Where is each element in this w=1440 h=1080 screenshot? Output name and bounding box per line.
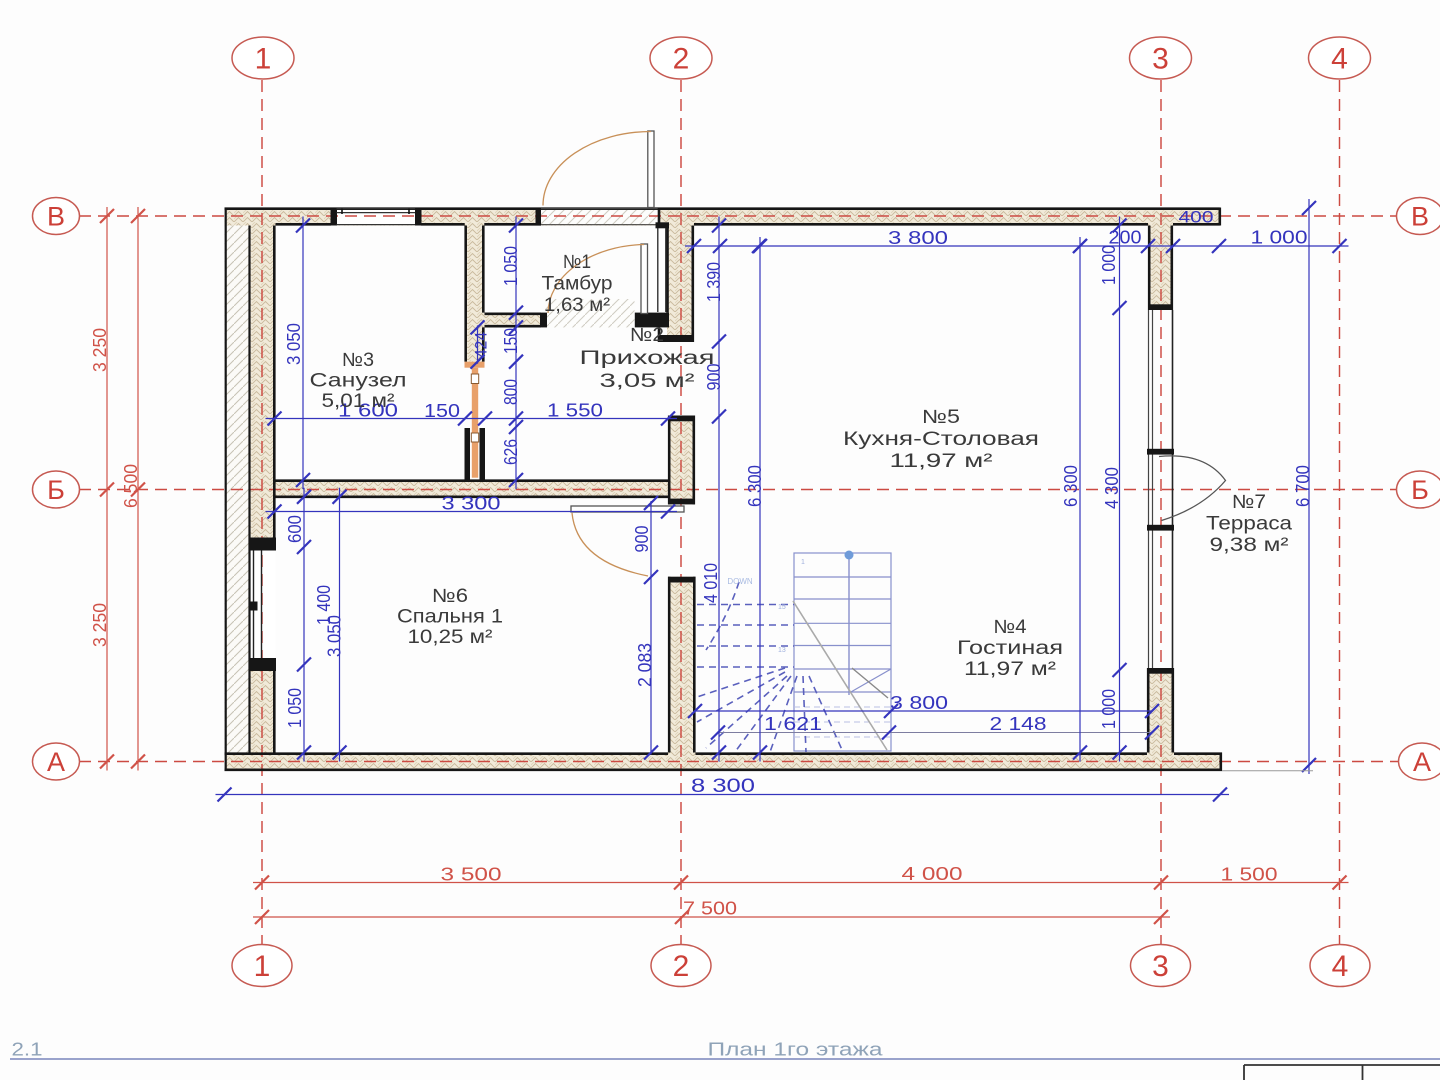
svg-text:1: 1 <box>254 950 271 983</box>
svg-text:4 000: 4 000 <box>902 863 963 884</box>
svg-text:6 300: 6 300 <box>744 465 765 507</box>
svg-text:3 300: 3 300 <box>442 493 501 514</box>
svg-text:3 800: 3 800 <box>888 227 948 248</box>
svg-text:1 390: 1 390 <box>703 262 724 302</box>
svg-text:900: 900 <box>631 526 652 553</box>
svg-text:3,05 м²: 3,05 м² <box>600 371 695 392</box>
svg-text:1 050: 1 050 <box>284 688 305 728</box>
svg-text:1 000: 1 000 <box>1098 689 1119 729</box>
svg-text:1 621: 1 621 <box>764 713 822 734</box>
svg-text:3 050: 3 050 <box>324 615 345 657</box>
svg-text:626: 626 <box>500 439 521 465</box>
svg-text:6 500: 6 500 <box>120 464 141 508</box>
svg-text:№2: №2 <box>630 325 664 346</box>
svg-text:10,25 м²: 10,25 м² <box>408 627 493 648</box>
svg-text:В: В <box>1411 202 1429 232</box>
svg-text:А: А <box>47 747 65 777</box>
svg-text:2.1: 2.1 <box>12 1040 43 1060</box>
svg-text:11,97 м²: 11,97 м² <box>890 451 993 472</box>
svg-text:4 300: 4 300 <box>1101 467 1122 509</box>
svg-text:150: 150 <box>500 328 521 354</box>
svg-text:№3: №3 <box>342 350 374 371</box>
svg-text:6 300: 6 300 <box>1060 465 1081 507</box>
svg-text:2: 2 <box>673 43 690 76</box>
svg-text:1 500: 1 500 <box>1221 864 1278 885</box>
svg-text:План 1го этажа: План 1го этажа <box>708 1040 884 1060</box>
svg-text:В: В <box>47 202 65 232</box>
svg-text:600: 600 <box>284 515 305 543</box>
svg-text:2: 2 <box>673 950 690 983</box>
svg-text:Гостиная: Гостиная <box>957 638 1063 659</box>
svg-text:1: 1 <box>255 43 272 76</box>
svg-text:800: 800 <box>500 379 521 405</box>
svg-text:400: 400 <box>1179 208 1214 227</box>
svg-text:15: 15 <box>778 604 786 611</box>
svg-text:1 050: 1 050 <box>500 246 521 286</box>
svg-text:4 010: 4 010 <box>700 563 721 603</box>
svg-text:1: 1 <box>801 559 805 566</box>
svg-text:1 000: 1 000 <box>1098 245 1119 285</box>
svg-text:3 250: 3 250 <box>89 328 110 372</box>
svg-text:Тамбур: Тамбур <box>542 274 613 295</box>
svg-text:3: 3 <box>1152 950 1169 983</box>
svg-text:DOWN: DOWN <box>727 577 753 586</box>
svg-text:№7: №7 <box>1232 492 1266 513</box>
svg-text:№5: №5 <box>922 407 960 428</box>
svg-text:Б: Б <box>1411 475 1429 505</box>
svg-text:6 700: 6 700 <box>1292 465 1313 507</box>
svg-text:2 083: 2 083 <box>634 643 655 687</box>
svg-text:8 300: 8 300 <box>691 775 755 797</box>
svg-text:Спальня 1: Спальня 1 <box>397 607 503 628</box>
svg-text:3 800: 3 800 <box>890 692 948 713</box>
svg-text:Кухня-Столовая: Кухня-Столовая <box>843 429 1039 450</box>
svg-text:424: 424 <box>472 332 491 358</box>
svg-text:Терраса: Терраса <box>1206 514 1293 535</box>
svg-text:А: А <box>1413 747 1431 777</box>
svg-text:9,38 м²: 9,38 м² <box>1210 535 1289 556</box>
svg-text:1 550: 1 550 <box>547 400 603 421</box>
svg-text:5,01 м²: 5,01 м² <box>322 391 395 412</box>
svg-text:3: 3 <box>1152 43 1169 76</box>
svg-text:№1: №1 <box>563 252 591 273</box>
svg-text:№6: №6 <box>432 586 468 607</box>
svg-text:3 250: 3 250 <box>89 603 110 647</box>
svg-text:11,97 м²: 11,97 м² <box>964 659 1056 680</box>
svg-text:4: 4 <box>1331 43 1348 76</box>
svg-text:2 148: 2 148 <box>990 713 1047 734</box>
svg-text:3 050: 3 050 <box>283 323 304 365</box>
svg-text:1 000: 1 000 <box>1251 227 1308 248</box>
svg-text:13: 13 <box>778 647 786 654</box>
svg-text:Прихожая: Прихожая <box>580 348 715 369</box>
svg-text:7 500: 7 500 <box>683 898 737 919</box>
svg-text:200: 200 <box>1109 227 1142 248</box>
svg-text:Б: Б <box>47 475 65 505</box>
svg-text:№4: №4 <box>994 617 1027 638</box>
svg-text:Санузел: Санузел <box>310 371 407 392</box>
svg-text:4: 4 <box>1332 950 1349 983</box>
svg-text:1,63 м²: 1,63 м² <box>544 295 610 316</box>
svg-text:3 500: 3 500 <box>441 864 502 885</box>
svg-text:150: 150 <box>424 400 460 421</box>
